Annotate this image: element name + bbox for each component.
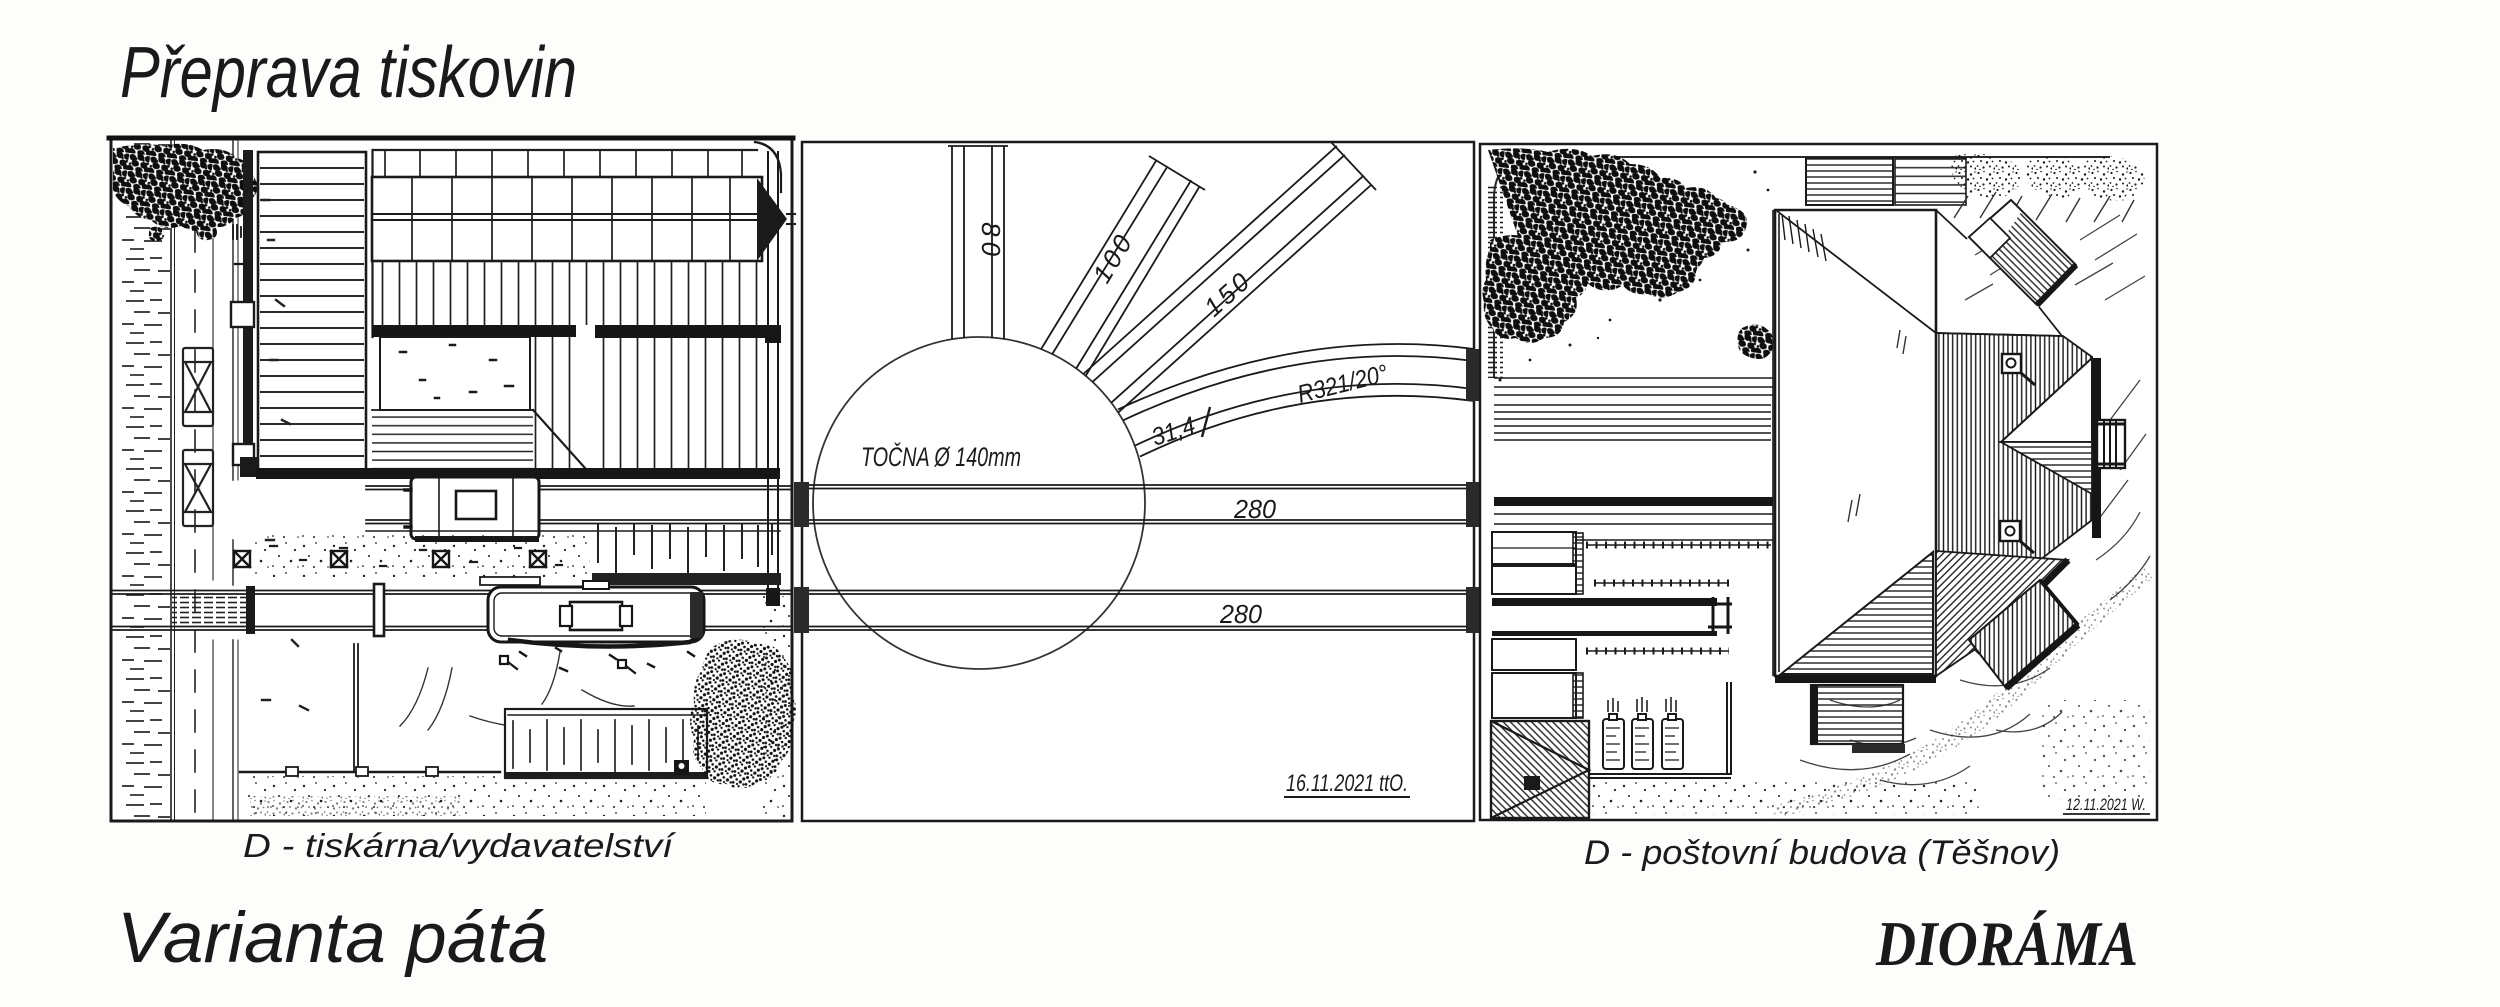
svg-text:12.11.2021 W.: 12.11.2021 W.	[2066, 795, 2146, 814]
svg-text:280: 280	[1233, 494, 1276, 524]
svg-text:TOČNA Ø 140mm: TOČNA Ø 140mm	[861, 441, 1021, 472]
svg-text:280: 280	[1219, 599, 1262, 629]
svg-text:DIORÁMA: DIORÁMA	[1875, 908, 2138, 979]
svg-text:Přeprava tiskovin: Přeprava tiskovin	[120, 33, 577, 113]
svg-text:D - poštovní budova (Těšnov): D - poštovní budova (Těšnov)	[1584, 834, 2060, 872]
svg-text:16.11.2021 ttO.: 16.11.2021 ttO.	[1286, 770, 1408, 797]
svg-text:Varianta pátá: Varianta pátá	[117, 899, 548, 978]
svg-text:D - tiskárna/vydavatelství: D - tiskárna/vydavatelství	[243, 827, 676, 864]
